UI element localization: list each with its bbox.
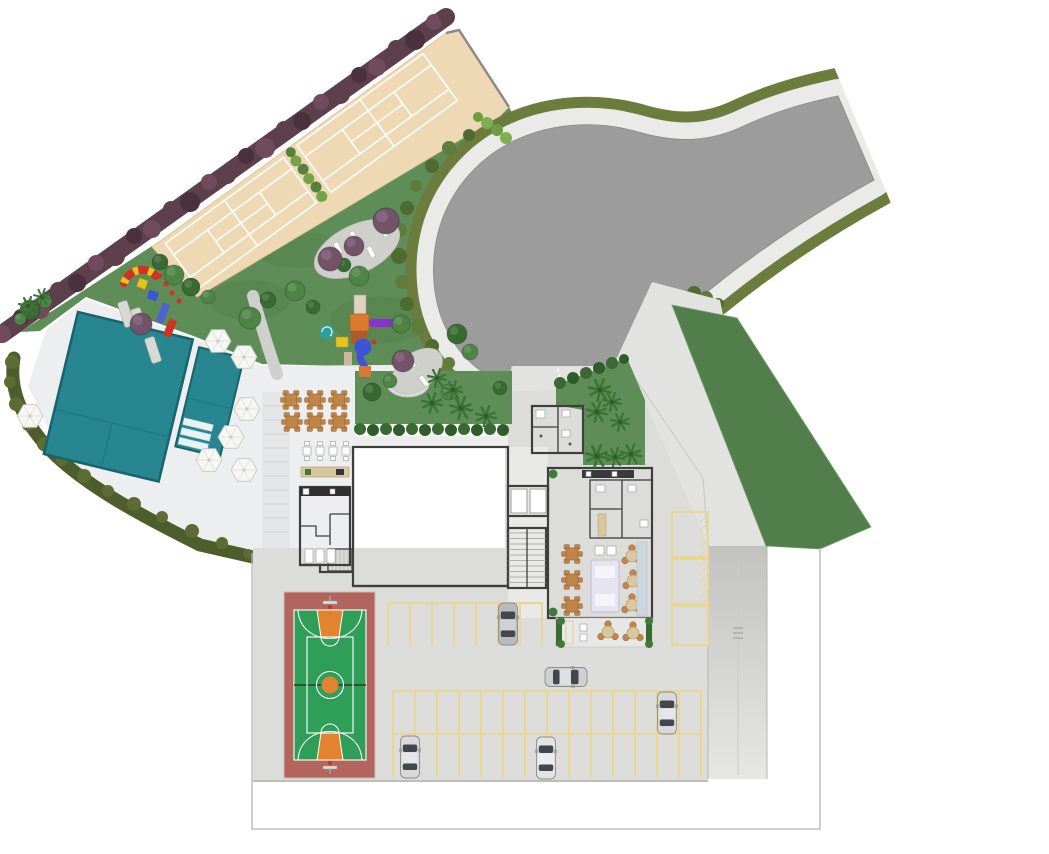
bar-plant <box>305 469 311 475</box>
elevator-2 <box>530 489 546 513</box>
terrace-bench <box>566 621 573 644</box>
purple-tree <box>344 236 364 256</box>
tree <box>383 374 397 388</box>
bar-grill <box>336 469 344 475</box>
tree <box>201 290 215 304</box>
tree <box>493 381 507 395</box>
tree <box>462 344 478 360</box>
tree <box>306 300 320 314</box>
site-plan-canvas <box>0 0 1049 854</box>
car <box>535 737 557 779</box>
purple-tree <box>392 350 414 372</box>
tree <box>260 292 276 308</box>
tree <box>182 278 200 296</box>
armchair <box>595 546 604 555</box>
tree <box>363 383 381 401</box>
site-plan <box>0 0 1049 854</box>
car <box>497 603 519 645</box>
sofa-set <box>591 560 619 612</box>
armchair <box>607 546 616 555</box>
tree <box>285 281 305 301</box>
tree <box>239 307 261 329</box>
no-parking-hatch <box>700 512 709 602</box>
corridor <box>508 447 548 618</box>
plant <box>549 470 558 479</box>
car <box>656 692 678 734</box>
tree <box>349 266 369 286</box>
tree <box>164 265 184 285</box>
car <box>545 666 587 688</box>
purple-tree <box>130 313 152 335</box>
lounge-terrace <box>556 617 653 648</box>
purple-tree <box>373 208 399 234</box>
basement-ramp <box>708 546 767 779</box>
lounge-sideboard <box>637 542 647 616</box>
basketball-court <box>284 592 375 778</box>
tree <box>14 313 26 325</box>
car <box>399 736 421 778</box>
tree <box>392 315 410 333</box>
elevator-1 <box>511 489 527 513</box>
purple-tree <box>318 247 342 271</box>
tree <box>152 254 168 270</box>
tree <box>447 324 467 344</box>
plant <box>549 608 558 617</box>
